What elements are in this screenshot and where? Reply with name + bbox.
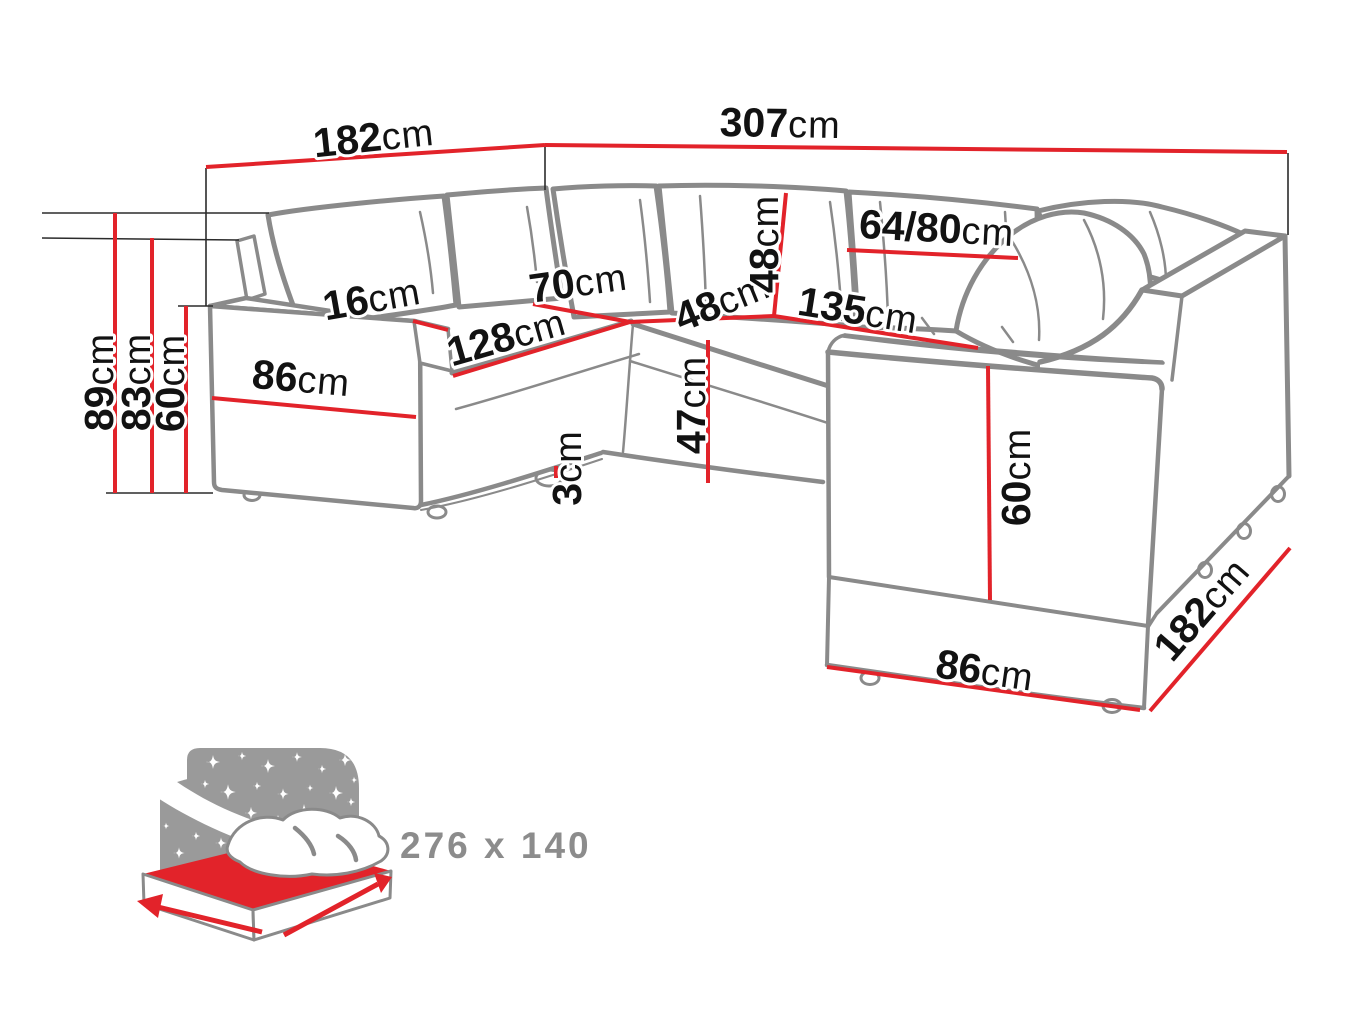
dim-line-ottoman-height — [988, 366, 990, 600]
dim-line-top-total-width — [545, 145, 1287, 152]
diagram-canvas: 182cm 307cm 89cm 83cm 60cm 86cm 16cm 70c… — [0, 0, 1370, 1027]
dim-label-top-total-width: 307cm — [719, 99, 841, 147]
dim-label-left-seat-width: 128cm — [442, 298, 571, 376]
sleeping-area-size-label: 276 x 140 — [400, 825, 592, 866]
dim-label-armrest-height: 60cm — [147, 334, 193, 432]
dim-label-back-cushion-height: 48cm — [741, 195, 787, 293]
bed-sleeping-area-icon: 276 x 140 — [137, 748, 592, 940]
dim-label-ottoman-height: 60cm — [993, 428, 1039, 526]
sofa-dimension-diagram: 182cm 307cm 89cm 83cm 60cm 86cm 16cm 70c… — [0, 0, 1370, 1027]
dim-label-seat-height: 47cm — [668, 356, 714, 454]
dim-label-top-left-width: 182cm — [311, 108, 436, 166]
dim-label-leg-height: 3cm — [544, 430, 590, 505]
